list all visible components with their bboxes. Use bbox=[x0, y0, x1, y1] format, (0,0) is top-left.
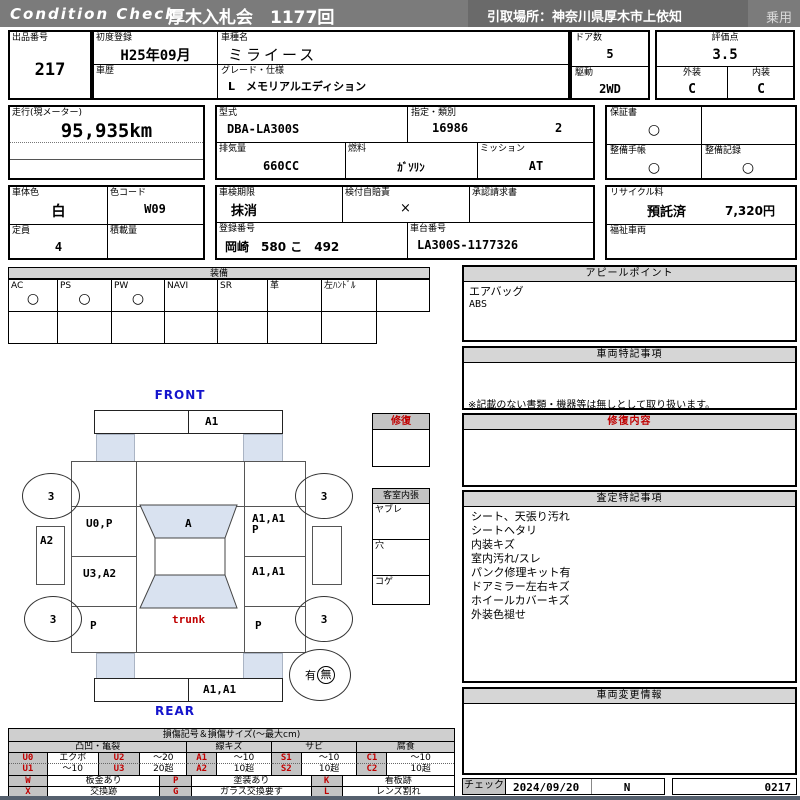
mileage-label: 走行(現メーター) bbox=[12, 108, 82, 118]
legend-code: U1 bbox=[9, 764, 48, 775]
assessment-line: シートヘタリ bbox=[471, 524, 790, 538]
drive-label: 駆動 bbox=[575, 68, 593, 78]
registration-no-value: 岡崎 580 こ 492 bbox=[225, 238, 339, 255]
recycle-fee-label: リサイクル料 bbox=[610, 188, 664, 198]
equipment-empty-cell bbox=[8, 312, 58, 344]
vehicle-notes-disclaimer: ※記載のない書類・機器等は無しとして取り扱います。 bbox=[468, 399, 715, 412]
damage-legend-title: 損傷記号＆損傷サイズ(～最大cm) bbox=[9, 729, 454, 742]
repair-detail-section: 修復内容 bbox=[462, 413, 797, 487]
equipment-row-2 bbox=[8, 312, 377, 344]
grade-value: L メモリアルエディション bbox=[228, 78, 366, 94]
repair-detail-title: 修復内容 bbox=[464, 415, 795, 430]
repair-detail-content bbox=[464, 430, 795, 436]
legend-group-scratches: 線キズ bbox=[187, 742, 272, 753]
appeal-line: ABS bbox=[469, 298, 790, 311]
right-mirror-panel bbox=[312, 526, 342, 585]
legend-code: C2 bbox=[357, 764, 387, 775]
legend-meaning: 板金あり bbox=[48, 776, 161, 787]
wheel-rear-left-damage: 3 bbox=[50, 613, 57, 626]
equipment-empty-cell bbox=[58, 312, 112, 344]
equipment-row-1: AC ○ PS ○ PW ○ NAVI SR 革 左ﾊﾝﾄﾞﾙ bbox=[8, 279, 430, 312]
legend-meaning: 看板跡 bbox=[343, 776, 455, 787]
score-box: 評価点 3.5 外装 C 内装 C bbox=[655, 30, 795, 100]
displacement-value: 660CC bbox=[217, 159, 345, 173]
color-code-value: W09 bbox=[107, 202, 203, 216]
welfare-vehicle-label: 福祉車両 bbox=[610, 226, 646, 236]
exhibit-number-value: 217 bbox=[10, 60, 90, 80]
color-capacity-box: 車体色 白 色コード W09 定員 4 積載量 bbox=[8, 185, 205, 260]
documents-box: 保証書 ○ 整備手帳 ○ 整備記録 ○ bbox=[605, 105, 797, 180]
model-spec-box: 型式 DBA-LA300S 指定・類別 16986 2 排気量 660CC 燃料… bbox=[215, 105, 595, 180]
bottom-rule bbox=[0, 796, 800, 800]
assessment-line: パンク修理キット有 bbox=[471, 566, 790, 580]
wheel-rear-right: 3 bbox=[295, 596, 353, 642]
exhibit-number-label: 出品番号 bbox=[12, 33, 48, 43]
legend-code: U3 bbox=[99, 764, 141, 775]
maintenance-book-mark: ○ bbox=[607, 160, 701, 176]
legend-size: エクボ bbox=[48, 753, 99, 764]
legend-code: W bbox=[9, 776, 48, 787]
legend-code: C1 bbox=[357, 753, 387, 764]
maintenance-record-mark: ○ bbox=[701, 160, 795, 176]
legend-size: 10超 bbox=[217, 764, 272, 775]
condition-check-sheet: Condition Check 厚木入札会 1177回 引取場所：神奈川県厚木市… bbox=[0, 0, 800, 800]
mileage-box: 走行(現メーター) 95,935km bbox=[8, 105, 205, 180]
capacity-label: 定員 bbox=[12, 226, 30, 236]
doors-value: 5 bbox=[572, 47, 648, 61]
doors-drive-box: ドア数 5 駆動 2WD bbox=[570, 30, 650, 100]
equipment-label: NAVI bbox=[167, 281, 188, 291]
check-box: チェック 2024/09/20 N bbox=[462, 778, 665, 795]
legend-size: ～10 bbox=[217, 753, 272, 764]
right-quarter-damage: P bbox=[255, 620, 262, 632]
maintenance-book-label: 整備手帳 bbox=[610, 146, 646, 156]
grade-label: グレード・仕様 bbox=[221, 66, 284, 76]
equipment-empty-cell bbox=[112, 312, 165, 344]
maintenance-record-label: 整備記録 bbox=[705, 146, 741, 156]
equipment-cell-ps: PS ○ bbox=[58, 279, 112, 312]
assessment-line: 内装キズ bbox=[471, 538, 790, 552]
first-registration-value: H25年09月 bbox=[98, 45, 213, 65]
front-bumper-corner-left bbox=[96, 434, 135, 462]
accident-no-circled: 無 bbox=[317, 666, 335, 684]
inspection-expiry-value: 抹消 bbox=[231, 200, 257, 219]
transmission-value: AT bbox=[477, 159, 595, 173]
equipment-cell-sr: SR bbox=[218, 279, 268, 312]
equipment-cell-pw: PW ○ bbox=[112, 279, 165, 312]
car-damage-diagram: FRONT A1 U0,P A A1,A1 P U3,A bbox=[0, 385, 460, 730]
header-bar: Condition Check 厚木入札会 1177回 引取場所：神奈川県厚木市… bbox=[0, 0, 800, 27]
equipment-empty-cell bbox=[165, 312, 218, 344]
accident-history-mark: 有 無 bbox=[289, 649, 351, 701]
check-date: 2024/09/20 bbox=[513, 781, 579, 794]
transmission-label: ミッション bbox=[480, 144, 525, 154]
assessment-section: 査定特記事項 シート、天張り汚れ シートヘタリ 内装キズ 室内汚れ/スレ パンク… bbox=[462, 490, 797, 683]
legend-code: U0 bbox=[9, 753, 48, 764]
model-code-label: 型式 bbox=[219, 108, 237, 118]
legend-size-row-1: U0 エクボ U2 ～20 A1 ～10 S1 ～10 C1 ～10 bbox=[9, 753, 454, 764]
vehicle-notes-title: 車両特記事項 bbox=[464, 348, 795, 363]
model-code-value: DBA-LA300S bbox=[227, 122, 299, 136]
assessment-line: ホイールカバーキズ bbox=[471, 594, 790, 608]
right-rear-door-damage: A1,A1 bbox=[252, 566, 285, 578]
model-name-label: 車種名 bbox=[221, 33, 248, 43]
equipment-mark: ○ bbox=[9, 291, 57, 307]
body-color-label: 車体色 bbox=[12, 188, 39, 198]
legend-code: P bbox=[160, 776, 192, 787]
change-info-section: 車両変更情報 bbox=[462, 687, 797, 775]
equipment-mark: ○ bbox=[112, 291, 164, 307]
left-mirror-damage: A2 bbox=[40, 535, 53, 547]
interior-label: 内装 bbox=[727, 68, 795, 78]
assessment-line: 外装色褪せ bbox=[471, 608, 790, 622]
equipment-cell-extra bbox=[377, 279, 430, 312]
legend-group-dents: 凸凹・亀裂 bbox=[9, 742, 187, 753]
designation-value2: 2 bbox=[555, 121, 562, 135]
equipment-label: PW bbox=[114, 281, 128, 291]
capacity-value: 4 bbox=[10, 240, 107, 254]
legend-size: 20超 bbox=[140, 764, 187, 775]
change-info-title: 車両変更情報 bbox=[464, 689, 795, 704]
legend-size: 10超 bbox=[302, 764, 358, 775]
assessment-line: ドアミラー左右キズ bbox=[471, 580, 790, 594]
equipment-label: AC bbox=[11, 281, 23, 291]
registration-no-label: 登録番号 bbox=[219, 224, 255, 234]
equipment-cell-leather: 革 bbox=[268, 279, 322, 312]
vehicle-history-label: 車歴 bbox=[96, 66, 114, 76]
doors-label: ドア数 bbox=[575, 33, 602, 43]
vehicle-category: 乗用 bbox=[766, 7, 792, 26]
marks-row-1: W 板金あり P 塗装あり K 看板跡 bbox=[9, 776, 454, 787]
inspection-registration-box: 車検期限 抹消 検付自賠責 × 承認請求書 登録番号 岡崎 580 こ 492 … bbox=[215, 185, 595, 260]
insurance-value: × bbox=[342, 201, 469, 216]
damage-legend-table: 損傷記号＆損傷サイズ(～最大cm) 凸凹・亀裂 線キズ サビ 腐食 U0 エクボ… bbox=[8, 728, 455, 776]
legend-code: S1 bbox=[272, 753, 302, 764]
legend-code: A1 bbox=[187, 753, 217, 764]
equipment-label: 左ﾊﾝﾄﾞﾙ bbox=[324, 281, 356, 291]
recycle-fee-amount: 7,320円 bbox=[725, 202, 775, 219]
interior-value: C bbox=[727, 82, 795, 97]
assessment-line: シート、天張り汚れ bbox=[471, 510, 790, 524]
windshield-damage: A bbox=[185, 518, 192, 530]
chassis-no-value: LA300S-1177326 bbox=[417, 238, 518, 252]
insurance-label: 検付自賠責 bbox=[345, 188, 390, 198]
appeal-points-section: アピールポイント エアバッグ ABS bbox=[462, 265, 797, 342]
roof-shape bbox=[155, 538, 225, 575]
left-rear-door-damage: U3,A2 bbox=[83, 568, 116, 580]
warranty-label: 保証書 bbox=[610, 108, 637, 118]
approval-request-label: 承認請求書 bbox=[472, 188, 517, 198]
equipment-empty-cell bbox=[268, 312, 322, 344]
legend-size: ～10 bbox=[387, 753, 454, 764]
chassis-no-label: 車台番号 bbox=[410, 224, 446, 234]
legend-size: ～20 bbox=[140, 753, 187, 764]
equipment-cell-lhd: 左ﾊﾝﾄﾞﾙ bbox=[322, 279, 377, 312]
left-front-door-damage: U0,P bbox=[86, 518, 113, 530]
legend-group-row: 凸凹・亀裂 線キズ サビ 腐食 bbox=[9, 742, 454, 753]
rear-bumper-corner-left bbox=[96, 653, 135, 679]
assessment-line: 室内汚れ/スレ bbox=[471, 552, 790, 566]
body-color-value: 白 bbox=[10, 201, 107, 221]
assessment-title: 査定特記事項 bbox=[464, 492, 795, 507]
equipment-cell-ac: AC ○ bbox=[8, 279, 58, 312]
legend-size-row-2: U1 ～10 U3 20超 A2 10超 S2 10超 C2 10超 bbox=[9, 764, 454, 775]
wheel-rear-right-damage: 3 bbox=[321, 613, 328, 626]
legend-meaning: 塗装あり bbox=[192, 776, 311, 787]
rear-bumper-panel: A1,A1 bbox=[94, 678, 283, 702]
exterior-value: C bbox=[657, 82, 727, 97]
score-value: 3.5 bbox=[657, 47, 793, 63]
legend-group-corrosion: 腐食 bbox=[357, 742, 454, 753]
left-mirror-panel: A2 bbox=[36, 526, 65, 585]
legend-code: U2 bbox=[99, 753, 141, 764]
recycle-welfare-box: リサイクル料 預託済 7,320円 福祉車両 bbox=[605, 185, 797, 260]
legend-size: 10超 bbox=[387, 764, 454, 775]
model-name-value: ミライース bbox=[228, 44, 317, 65]
equipment-label: PS bbox=[60, 281, 71, 291]
recycle-fee-status: 預託済 bbox=[647, 201, 686, 220]
fuel-value: ｶﾞｿﾘﾝ bbox=[345, 159, 477, 175]
legend-code: S2 bbox=[272, 764, 302, 775]
wheel-front-right-damage: 3 bbox=[321, 490, 328, 503]
front-bumper-panel: A1 bbox=[94, 410, 283, 434]
appeal-line: エアバッグ bbox=[469, 285, 790, 298]
legend-code: A2 bbox=[187, 764, 217, 775]
score-label: 評価点 bbox=[657, 33, 793, 43]
check-number-box: 0217 bbox=[672, 778, 797, 795]
diagram-rear-label: REAR bbox=[145, 705, 205, 717]
equipment-label: SR bbox=[220, 281, 232, 291]
equipment-empty-cell bbox=[218, 312, 268, 344]
equipment-cell-navi: NAVI bbox=[165, 279, 218, 312]
legend-size: ～10 bbox=[302, 753, 358, 764]
rear-bumper-corner-right bbox=[243, 653, 283, 679]
left-quarter-damage: P bbox=[90, 620, 97, 632]
auction-title: 厚木入札会 1177回 bbox=[168, 3, 334, 28]
front-bumper-damage: A1 bbox=[205, 416, 218, 428]
drive-value: 2WD bbox=[572, 82, 648, 96]
exhibit-number-box: 出品番号 217 bbox=[8, 30, 92, 100]
diagram-front-label: FRONT bbox=[150, 389, 210, 401]
accident-yes-label: 有 bbox=[305, 667, 316, 683]
right-front-door-damage-2: P bbox=[252, 524, 259, 536]
car-body-outline: U0,P A A1,A1 P U3,A2 A1,A1 P trunk P bbox=[71, 461, 306, 653]
wheel-front-left-damage: 3 bbox=[48, 490, 55, 503]
equipment-empty-cell bbox=[322, 312, 377, 344]
designation-value1: 16986 bbox=[432, 121, 468, 135]
trunk-label: trunk bbox=[172, 614, 205, 626]
fuel-label: 燃料 bbox=[348, 144, 366, 154]
warranty-mark: ○ bbox=[607, 122, 701, 138]
legend-code: K bbox=[312, 776, 343, 787]
rear-bumper-damage: A1,A1 bbox=[203, 684, 236, 696]
equipment-title: 装備 bbox=[8, 267, 430, 279]
displacement-label: 排気量 bbox=[219, 144, 246, 154]
pickup-location: 引取場所：神奈川県厚木市上依知 bbox=[487, 6, 682, 25]
brand-logo: Condition Check bbox=[10, 5, 177, 23]
check-number: 0217 bbox=[765, 781, 792, 794]
check-inspector: N bbox=[591, 781, 663, 794]
wheel-front-right: 3 bbox=[295, 473, 353, 519]
legend-size: ～10 bbox=[48, 764, 99, 775]
front-bumper-corner-right bbox=[243, 434, 283, 462]
equipment-mark: ○ bbox=[58, 291, 111, 307]
exterior-label: 外装 bbox=[657, 68, 727, 78]
vehicle-id-box: 初度登録 H25年09月 車歴 車種名 ミライース グレード・仕様 L メモリア… bbox=[92, 30, 570, 100]
mileage-value: 95,935km bbox=[10, 120, 203, 142]
wheel-front-left: 3 bbox=[22, 473, 80, 519]
designation-label: 指定・類別 bbox=[411, 108, 456, 118]
vehicle-notes-section: 車両特記事項 ※記載のない書類・機器等は無しとして取り扱います。 bbox=[462, 346, 797, 410]
appeal-points-title: アピールポイント bbox=[464, 267, 795, 282]
change-info-content bbox=[464, 704, 795, 710]
equipment-label: 革 bbox=[270, 281, 279, 291]
load-capacity-label: 積載量 bbox=[110, 226, 137, 236]
equipment-table: 装備 AC ○ PS ○ PW ○ NAVI SR 革 bbox=[8, 267, 430, 279]
color-code-label: 色コード bbox=[110, 188, 146, 198]
first-registration-label: 初度登録 bbox=[96, 33, 132, 43]
rear-window-shape bbox=[140, 575, 237, 608]
inspection-expiry-label: 車検期限 bbox=[219, 188, 255, 198]
wheel-rear-left: 3 bbox=[24, 596, 82, 642]
legend-group-rust: サビ bbox=[272, 742, 358, 753]
check-label: チェック bbox=[463, 779, 506, 794]
